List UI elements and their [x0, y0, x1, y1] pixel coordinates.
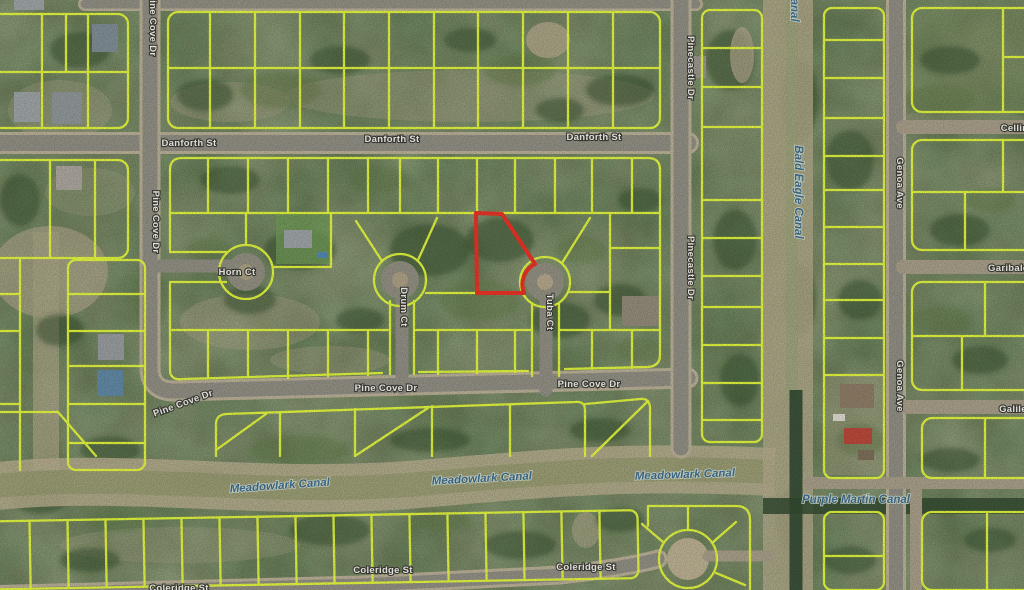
- map-canvas: Danforth St Danforth St Danforth St Pine…: [0, 0, 1024, 590]
- satellite-map: Danforth St Danforth St Danforth St Pine…: [0, 0, 1024, 590]
- texture-overlay: [0, 0, 1024, 590]
